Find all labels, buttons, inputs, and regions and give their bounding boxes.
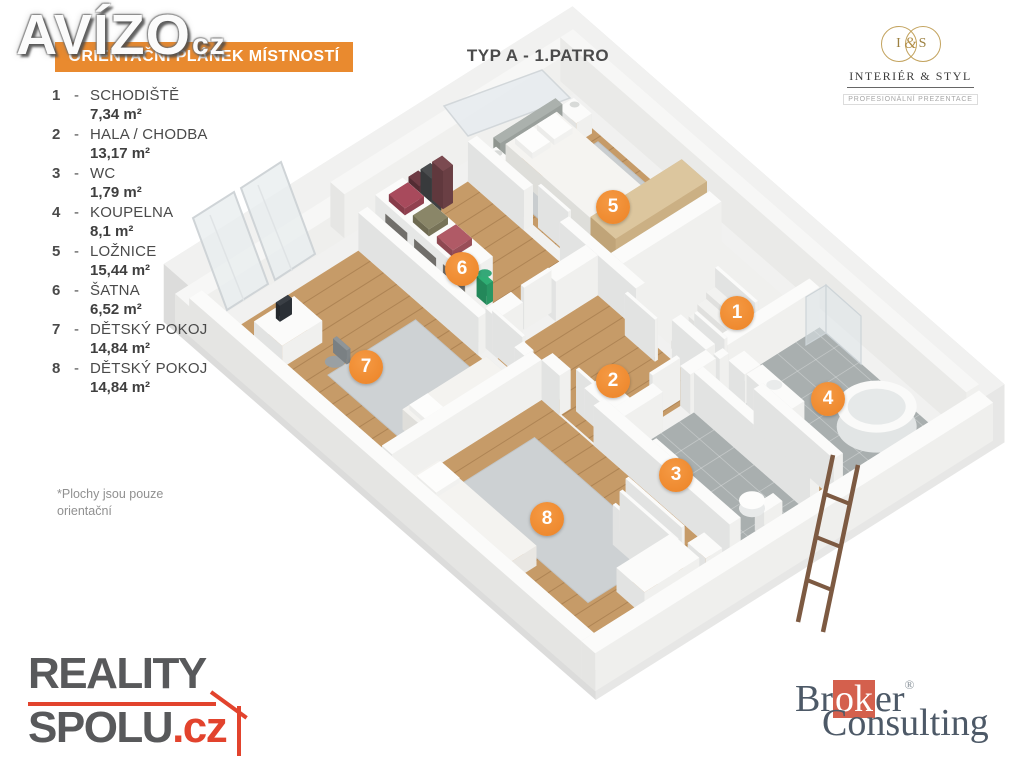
legend-item-number: 4: [52, 203, 74, 222]
watermark-text: AVÍZO: [16, 3, 191, 67]
legend-item-name: WC: [90, 164, 115, 183]
broker-consulting-logo: Broker® Consulting: [795, 666, 1023, 740]
legend-item-area: 8,1 m²: [90, 222, 208, 241]
agency-line1: REALITY: [28, 650, 268, 698]
legend-item-name: KOUPELNA: [90, 203, 173, 222]
legend-item-area: 7,34 m²: [90, 105, 208, 124]
room-marker-5: 5: [596, 190, 630, 224]
page-title: TYP A - 1.PATRO: [398, 46, 678, 66]
legend-item: 2-HALA / CHODBA13,17 m²: [52, 125, 208, 163]
agency-line2: SPOLU.cz: [28, 704, 268, 752]
partner-tagline: PROFESIONÁLNÍ PREZENTACE: [843, 94, 977, 105]
legend-item: 4-KOUPELNA8,1 m²: [52, 203, 208, 241]
legend-item-number: 6: [52, 281, 74, 300]
legend-item: 6-ŠATNA6,52 m²: [52, 281, 208, 319]
legend-item-name: DĚTSKÝ POKOJ: [90, 359, 207, 378]
room-marker-2: 2: [596, 364, 630, 398]
legend-item-area: 15,44 m²: [90, 261, 208, 280]
room-marker-7: 7: [349, 350, 383, 384]
legend-item: 5-LOŽNICE15,44 m²: [52, 242, 208, 280]
legend-item: 3-WC1,79 m²: [52, 164, 208, 202]
watermark-suffix: cz: [192, 28, 226, 61]
legend-item-name: LOŽNICE: [90, 242, 156, 261]
logo-rings-icon: I S &: [843, 26, 978, 66]
partner-name: INTERIÉR & STYL: [847, 67, 974, 88]
avizo-watermark: AVÍZOcz: [16, 2, 226, 68]
room-marker-1: 1: [720, 296, 754, 330]
legend-item-name: ŠATNA: [90, 281, 140, 300]
legend-item-area: 13,17 m²: [90, 144, 208, 163]
interier-styl-logo: I S & INTERIÉR & STYL PROFESIONÁLNÍ PREZ…: [843, 26, 978, 106]
legend-item-number: 5: [52, 242, 74, 261]
room-marker-6: 6: [445, 252, 479, 286]
reality-spolu-logo: REALITY SPOLU.cz: [28, 650, 268, 752]
flyer-page: 12345678 ORIENTAČNÍ PLÁNEK MÍSTNOSTÍ AVÍ…: [0, 0, 1024, 768]
legend-item-name: HALA / CHODBA: [90, 125, 208, 144]
legend-item-number: 2: [52, 125, 74, 144]
note-line1: *Plochy jsou pouze: [57, 486, 163, 503]
agency-house-wall: [237, 706, 241, 756]
legend-item: 8-DĚTSKÝ POKOJ14,84 m²: [52, 359, 208, 397]
room-marker-3: 3: [659, 458, 693, 492]
agency-tld: .cz: [172, 703, 226, 752]
broker-line2: Consulting: [822, 706, 1023, 740]
legend-item-area: 14,84 m²: [90, 378, 208, 397]
legend-item-name: SCHODIŠTĚ: [90, 86, 179, 105]
legend-item-number: 8: [52, 359, 74, 378]
agency-house-baseline: [28, 702, 216, 706]
room-marker-8: 8: [530, 502, 564, 536]
legend-item-area: 6,52 m²: [90, 300, 208, 319]
legend-item: 7-DĚTSKÝ POKOJ14,84 m²: [52, 320, 208, 358]
legend-note: *Plochy jsou pouze orientační: [57, 486, 163, 520]
legend-item-number: 1: [52, 86, 74, 105]
legend-item-name: DĚTSKÝ POKOJ: [90, 320, 207, 339]
room-marker-4: 4: [811, 382, 845, 416]
logo-ampersand: &: [904, 35, 916, 53]
note-line2: orientační: [57, 503, 163, 520]
legend-item-number: 7: [52, 320, 74, 339]
legend-item-area: 14,84 m²: [90, 339, 208, 358]
legend-item-number: 3: [52, 164, 74, 183]
legend-item: 1-SCHODIŠTĚ7,34 m²: [52, 86, 208, 124]
legend-item-area: 1,79 m²: [90, 183, 208, 202]
registered-mark: ®: [905, 677, 915, 692]
room-legend: 1-SCHODIŠTĚ7,34 m²2-HALA / CHODBA13,17 m…: [52, 86, 208, 398]
